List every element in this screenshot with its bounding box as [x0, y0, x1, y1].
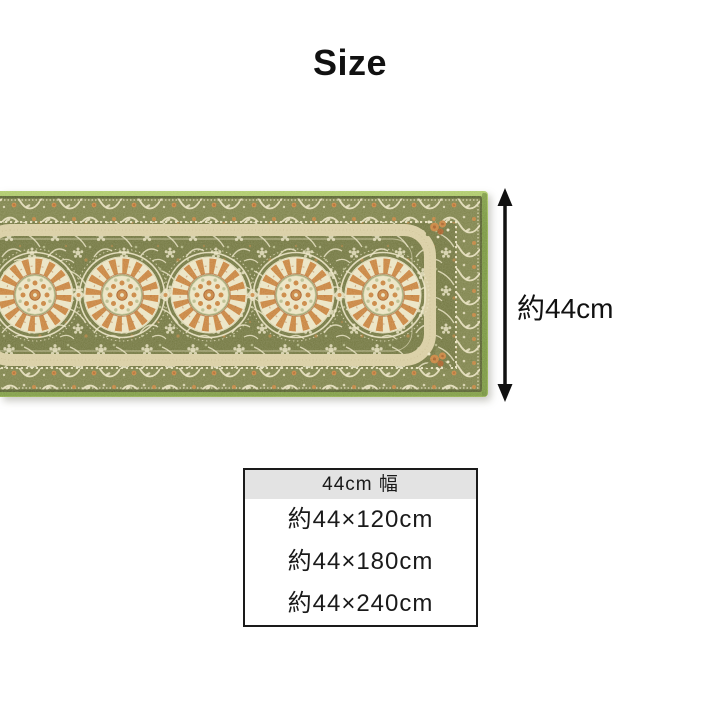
size-table-row: 約44×240cm — [245, 583, 476, 625]
size-table-row: 約44×180cm — [245, 541, 476, 583]
size-diagram-page: Size — [0, 0, 720, 720]
size-table-row: 約44×120cm — [245, 499, 476, 541]
rug-product-image — [0, 189, 488, 401]
height-dimension-label: 約44cm — [517, 287, 613, 327]
page-title: Size — [0, 42, 700, 84]
height-dimension-arrow — [492, 186, 518, 404]
size-table: 44cm 幅 約44×120cm 約44×180cm 約44×240cm — [243, 468, 478, 627]
size-table-header: 44cm 幅 — [245, 470, 476, 499]
